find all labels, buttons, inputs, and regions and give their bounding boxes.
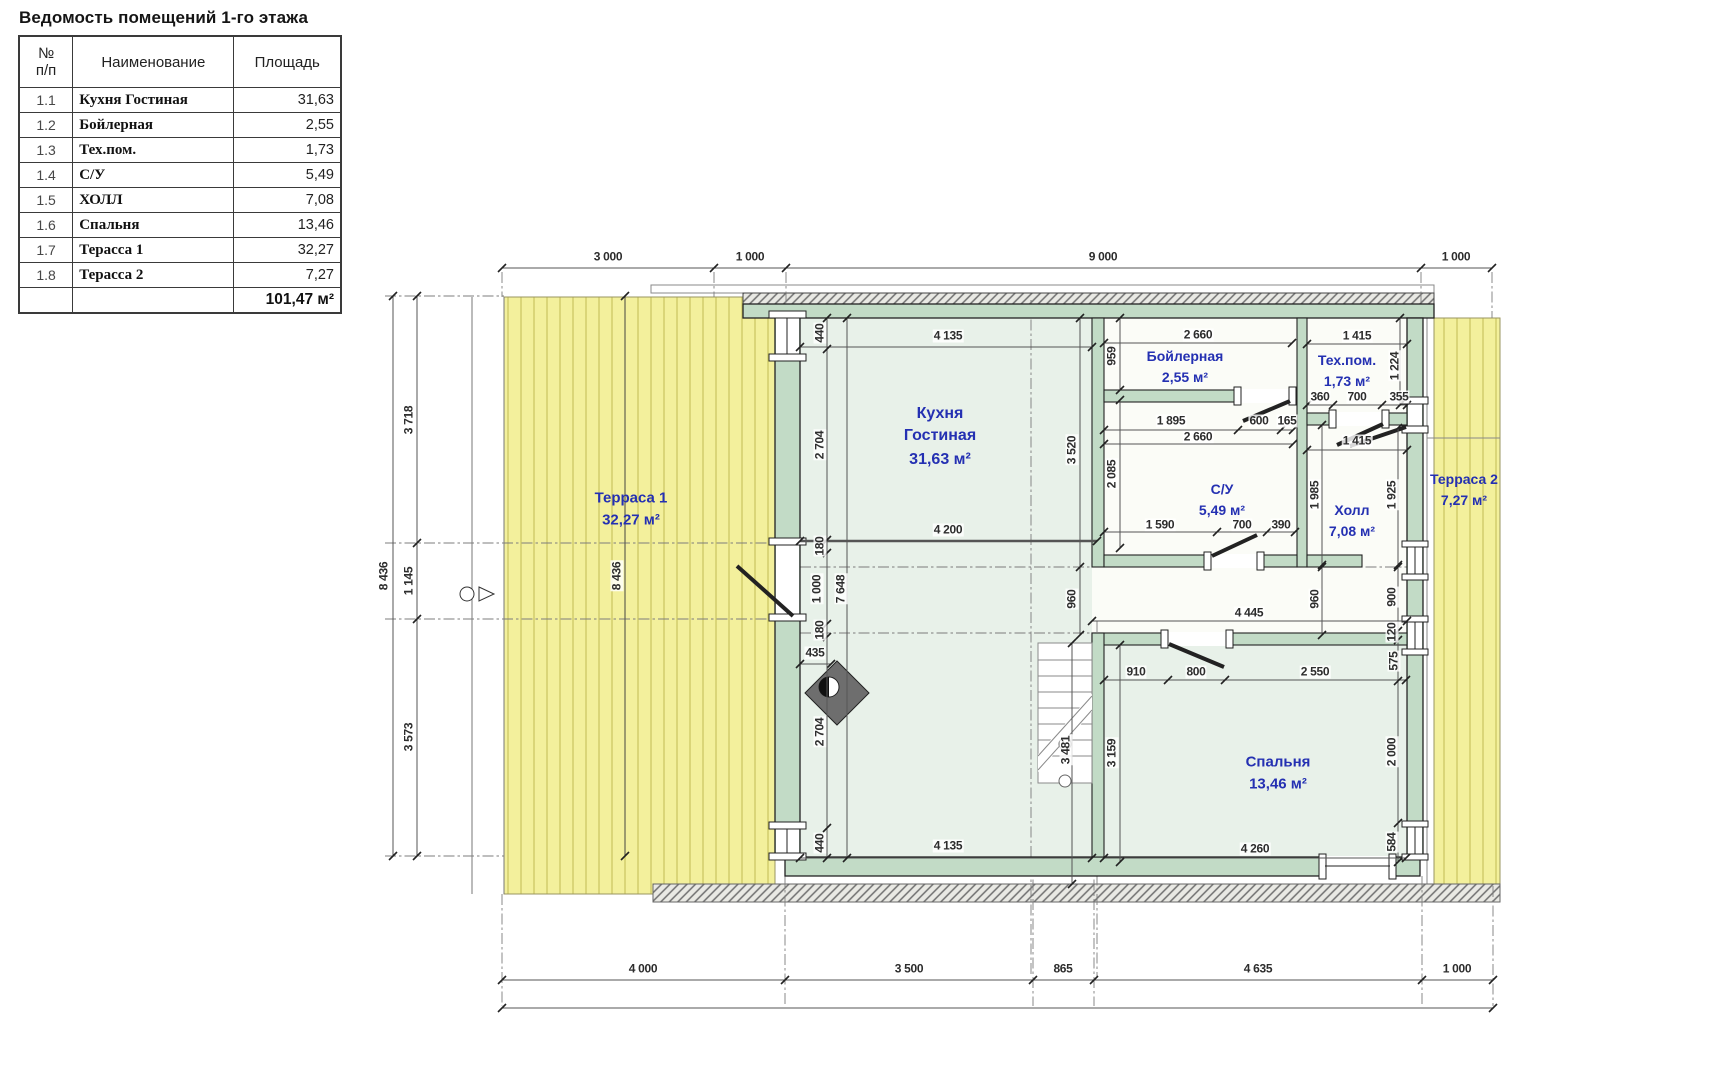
- terrace-1-deck: [504, 297, 775, 894]
- staircase: [1038, 643, 1092, 787]
- drawing-sheet: Ведомость помещений 1-го этажа № п/п Наи…: [0, 0, 1736, 1080]
- floor-plan: Кухня Гостиная31,63 м²Бойлерная2,55 м²Те…: [0, 0, 1736, 1080]
- terrace-edge-strip: [460, 297, 504, 894]
- terrace-2-deck: [1427, 318, 1500, 886]
- floor-plan-drawing: [0, 0, 1736, 1080]
